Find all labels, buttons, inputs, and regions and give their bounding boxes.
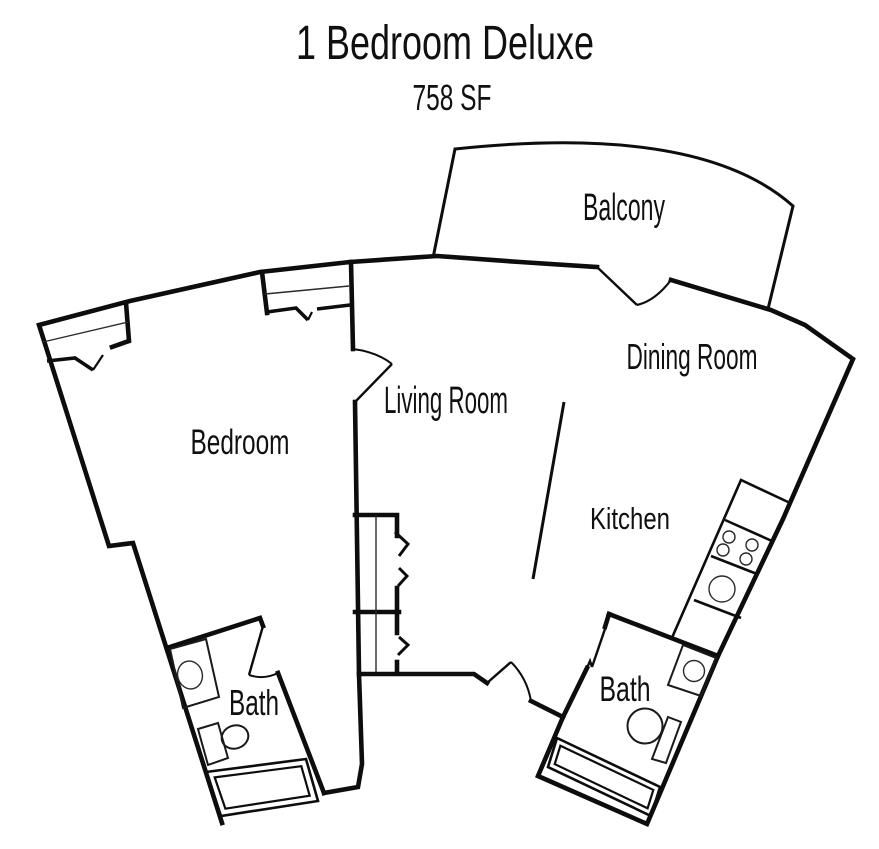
svg-text:1 Bedroom Deluxe: 1 Bedroom Deluxe bbox=[296, 17, 594, 70]
svg-text:Balcony: Balcony bbox=[583, 187, 665, 229]
svg-text:Bath: Bath bbox=[600, 670, 651, 709]
svg-text:Kitchen: Kitchen bbox=[590, 501, 670, 536]
svg-text:Dining Room: Dining Room bbox=[627, 336, 758, 377]
svg-text:Living Room: Living Room bbox=[384, 380, 508, 422]
svg-text:Bedroom: Bedroom bbox=[191, 423, 290, 462]
svg-text:758 SF: 758 SF bbox=[413, 77, 492, 118]
svg-text:Bath: Bath bbox=[229, 682, 279, 723]
